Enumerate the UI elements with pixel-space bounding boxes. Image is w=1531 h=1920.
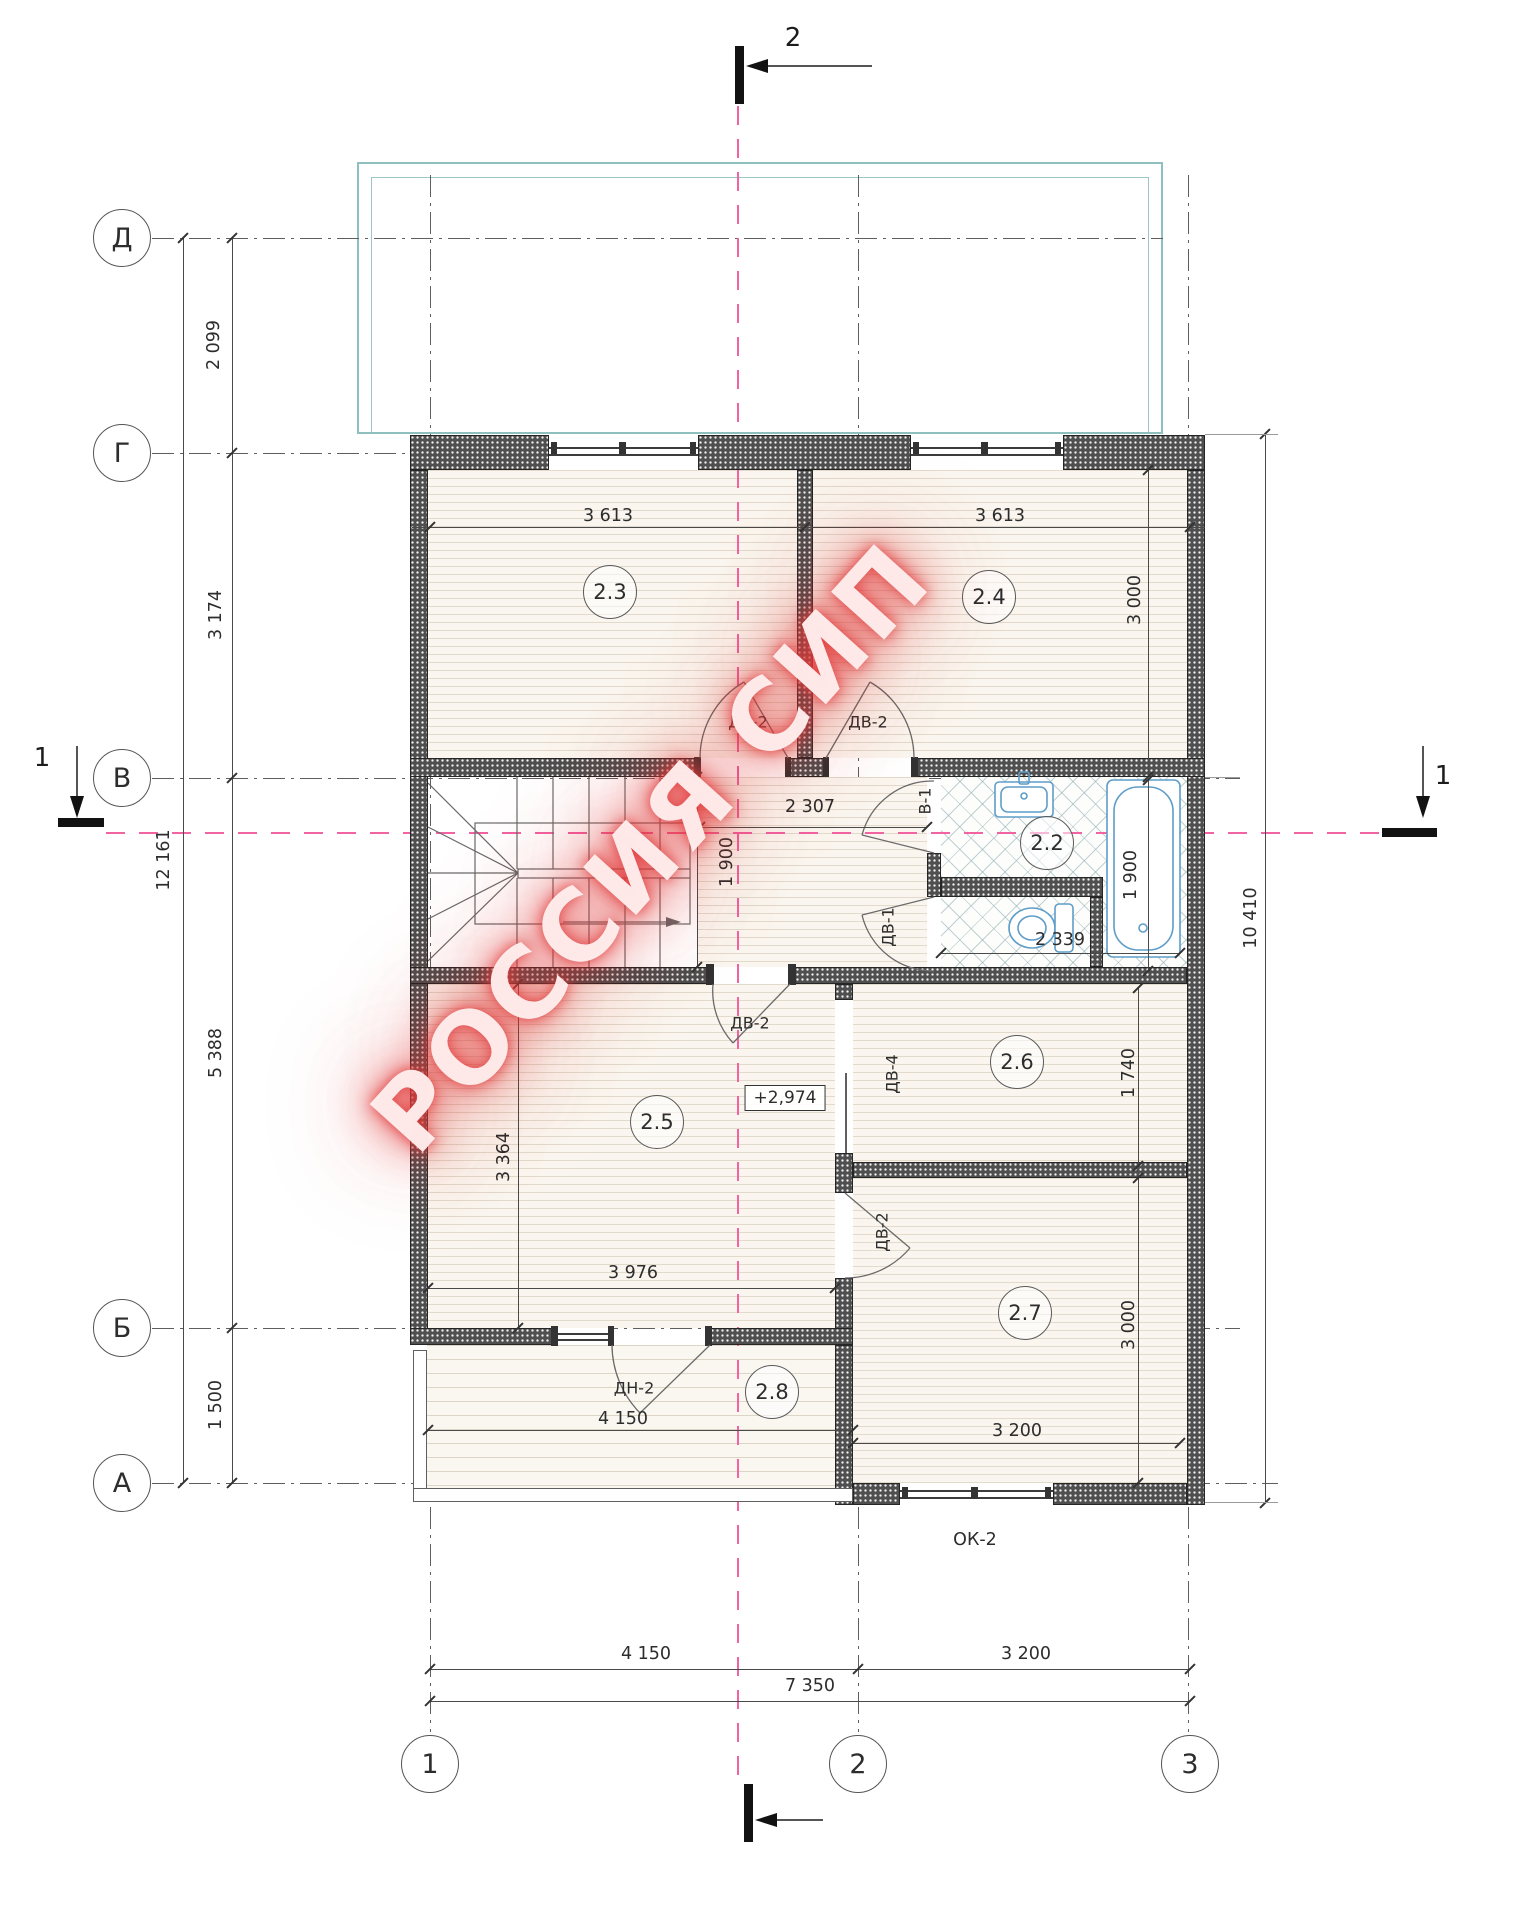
wall xyxy=(710,1328,853,1345)
terrace-railing-left xyxy=(413,1350,427,1502)
section-arrow-left xyxy=(70,796,84,818)
dim-line-bottom-total xyxy=(430,1701,1190,1702)
dim-right-total: 10 410 xyxy=(1241,887,1261,948)
dim-room26-h: 1 740 xyxy=(1119,1048,1139,1098)
wall xyxy=(1187,470,1205,1505)
room-tag-25: 2.5 xyxy=(630,1095,684,1149)
dim-line-left-segments xyxy=(232,238,233,1483)
section-label-left: 1 xyxy=(34,743,51,773)
dim-room25-h: 3 364 xyxy=(494,1132,514,1182)
axis-bubble-2: 2 xyxy=(829,1735,887,1793)
dim-line xyxy=(853,1443,1180,1444)
dim-bath-w: 2 339 xyxy=(1035,930,1085,950)
axis-bubble-1: 1 xyxy=(401,1735,459,1793)
section-tail-bottom xyxy=(777,1819,823,1821)
door-label-room27: ДВ-2 xyxy=(873,1212,892,1251)
dim-room27-h: 3 000 xyxy=(1119,1300,1139,1350)
section-mark-bottom xyxy=(744,1784,753,1842)
dim-bath-h: 1 900 xyxy=(1121,850,1141,900)
wall xyxy=(698,435,911,470)
section-mark-top xyxy=(735,46,744,104)
elevation-mark: +2,974 xyxy=(745,1085,826,1111)
room-tag-24: 2.4 xyxy=(962,570,1016,624)
window-mullion xyxy=(551,442,557,454)
door-label-room25: ДВ-2 xyxy=(730,1014,769,1033)
section-2-trace xyxy=(737,106,739,1782)
window-mullion xyxy=(913,442,919,454)
axis-bubble-G: Г xyxy=(93,424,151,482)
axis-line-D xyxy=(152,238,1163,239)
wall xyxy=(1063,435,1205,470)
dim-left-dg: 2 099 xyxy=(204,320,224,370)
dim-line xyxy=(428,1430,853,1431)
section-label-top: 2 xyxy=(785,23,802,53)
dim-bottom-12: 4 150 xyxy=(621,1644,671,1664)
door-label-wc: ДВ-1 xyxy=(879,907,898,946)
window-mullion xyxy=(690,442,696,454)
window-mullion xyxy=(902,1487,908,1499)
extension-line xyxy=(1205,1502,1278,1503)
dim-bottom-total: 7 350 xyxy=(785,1676,835,1696)
window-label-ok2: ОК-2 xyxy=(953,1530,997,1550)
axis-bubble-D: Д xyxy=(93,209,151,267)
wall xyxy=(410,1328,557,1345)
wall xyxy=(835,1153,853,1193)
window-mullion xyxy=(971,1487,978,1499)
room-tag-23: 2.3 xyxy=(583,565,637,619)
section-mark-left xyxy=(58,818,104,827)
section-tail-top xyxy=(768,65,872,67)
dim-room27-w: 3 200 xyxy=(992,1421,1042,1441)
wall xyxy=(410,470,428,1345)
section-tail-left xyxy=(76,746,78,800)
axis-bubble-V: В xyxy=(93,749,151,807)
extension-line xyxy=(1205,777,1240,778)
dim-line xyxy=(941,953,1180,954)
dim-left-ba: 1 500 xyxy=(206,1380,226,1430)
wall xyxy=(835,1345,853,1505)
dim-line xyxy=(428,1288,835,1289)
section-arrow-bottom xyxy=(755,1813,777,1827)
section-tail-right xyxy=(1422,746,1424,800)
door-jamb xyxy=(551,1326,558,1346)
dim-hall-w: 2 307 xyxy=(785,797,835,817)
window-mullion xyxy=(981,442,988,454)
wall xyxy=(835,984,853,1000)
dim-line xyxy=(412,527,820,528)
dim-line-right-total xyxy=(1265,434,1266,1503)
axis-bubble-3: 3 xyxy=(1161,1735,1219,1793)
dim-terrace-w: 4 150 xyxy=(598,1409,648,1429)
door-label-room24: ДВ-2 xyxy=(848,713,887,732)
section-mark-right xyxy=(1382,828,1437,837)
section-arrow-top xyxy=(746,59,768,73)
dim-room25-w: 3 976 xyxy=(608,1263,658,1283)
dim-line-left-total xyxy=(183,238,184,1483)
dim-line-bottom-segments xyxy=(430,1669,1190,1670)
dim-left-vb: 5 388 xyxy=(206,1028,226,1078)
terrace-railing-bottom xyxy=(413,1488,853,1502)
dim-line xyxy=(790,527,1205,528)
wall xyxy=(410,435,549,470)
wall xyxy=(853,1483,900,1505)
extension-line xyxy=(1205,434,1278,435)
wall xyxy=(1053,1483,1187,1505)
door-label-bathroom: В-1 xyxy=(916,788,935,815)
axis-bubble-B: Б xyxy=(93,1299,151,1357)
roof-outline xyxy=(357,162,1163,434)
door-label-terrace: ДН-2 xyxy=(614,1379,654,1398)
dim-line xyxy=(1148,470,1149,777)
door-label-room26: ДВ-4 xyxy=(883,1054,902,1093)
room-tag-28: 2.8 xyxy=(745,1365,799,1419)
wall xyxy=(790,967,1187,984)
balcony-sidelight xyxy=(557,1328,612,1345)
section-arrow-right xyxy=(1416,796,1430,818)
section-label-right: 1 xyxy=(1435,761,1452,791)
room-tag-22: 2.2 xyxy=(1020,816,1074,870)
dim-room24-w: 3 613 xyxy=(975,506,1025,526)
room-tag-26: 2.6 xyxy=(990,1035,1044,1089)
room-tag-27: 2.7 xyxy=(998,1286,1052,1340)
door-leaf-room26 xyxy=(845,1073,847,1153)
dim-room23-w: 3 613 xyxy=(583,506,633,526)
dim-room24-h: 3 000 xyxy=(1125,575,1145,625)
window-mullion xyxy=(619,442,626,454)
dim-bottom-23: 3 200 xyxy=(1001,1644,1051,1664)
dim-line xyxy=(1148,780,1149,971)
axis-bubble-A: А xyxy=(93,1454,151,1512)
floor-plan-sheet: 2 099 3 174 5 388 1 500 12 161 4 150 3 2… xyxy=(0,0,1531,1920)
dim-left-gv: 3 174 xyxy=(206,590,226,640)
roof-outline-inner xyxy=(371,177,1149,432)
window-mullion xyxy=(1055,442,1061,454)
bathtub-icon xyxy=(1107,780,1180,957)
dim-left-total: 12 161 xyxy=(154,829,174,890)
window-mullion xyxy=(1045,1487,1051,1499)
door-arc-wc xyxy=(855,890,940,975)
